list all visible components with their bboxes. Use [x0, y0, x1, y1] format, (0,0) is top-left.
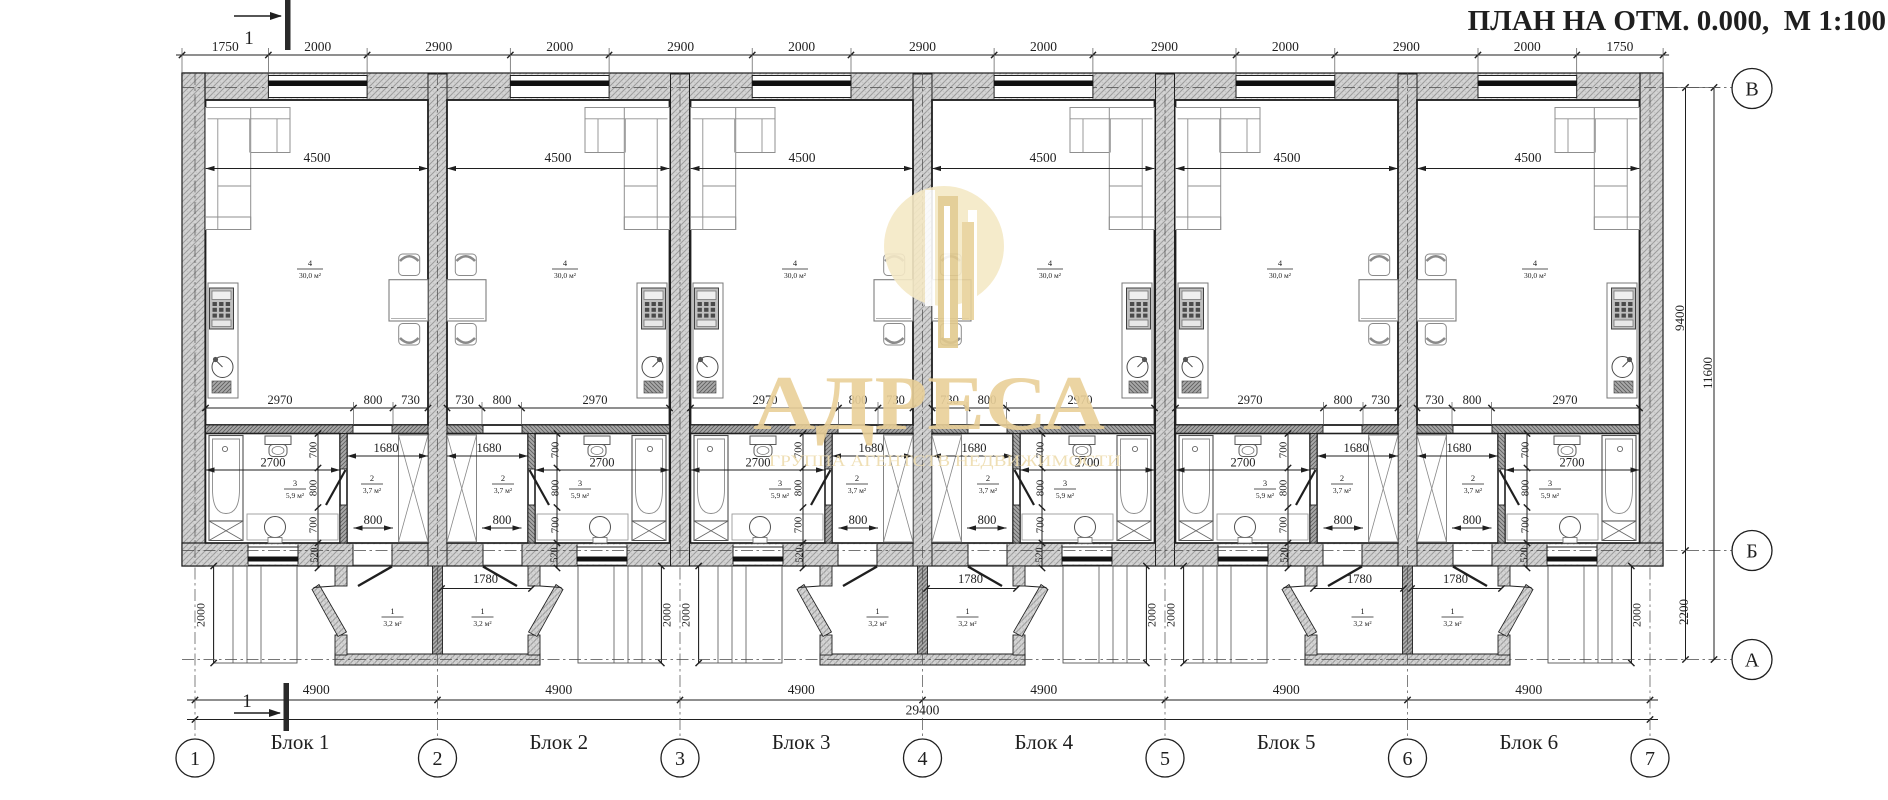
- svg-text:520: 520: [1520, 548, 1531, 563]
- svg-text:11600: 11600: [1700, 357, 1715, 389]
- svg-text:7: 7: [1645, 748, 1655, 770]
- svg-text:2000: 2000: [1145, 603, 1159, 627]
- svg-text:30,0 м²: 30,0 м²: [299, 271, 322, 280]
- svg-text:2: 2: [1471, 473, 1475, 483]
- svg-text:2000: 2000: [1272, 39, 1299, 54]
- svg-text:2900: 2900: [425, 39, 452, 54]
- svg-text:1780: 1780: [1347, 572, 1372, 586]
- svg-text:4900: 4900: [788, 682, 815, 697]
- svg-text:2000: 2000: [788, 39, 815, 54]
- svg-text:Блок 4: Блок 4: [1014, 730, 1073, 754]
- svg-text:4: 4: [918, 748, 928, 770]
- svg-text:3: 3: [1548, 478, 1552, 488]
- svg-text:2000: 2000: [1630, 603, 1644, 627]
- svg-text:800: 800: [550, 479, 562, 496]
- svg-text:700: 700: [550, 516, 562, 533]
- svg-text:3,7 м²: 3,7 м²: [979, 486, 998, 495]
- svg-text:1780: 1780: [958, 572, 983, 586]
- svg-text:2: 2: [1340, 473, 1344, 483]
- svg-text:700: 700: [1278, 441, 1290, 458]
- svg-text:5,9 м²: 5,9 м²: [571, 491, 590, 500]
- svg-text:5,9 м²: 5,9 м²: [1541, 491, 1560, 500]
- svg-text:1780: 1780: [1443, 572, 1468, 586]
- svg-text:1750: 1750: [1606, 39, 1633, 54]
- svg-text:520: 520: [795, 548, 806, 563]
- svg-text:3,7 м²: 3,7 м²: [1333, 486, 1352, 495]
- svg-text:2000: 2000: [304, 39, 331, 54]
- svg-text:2000: 2000: [1164, 603, 1178, 627]
- svg-text:700: 700: [1520, 441, 1532, 458]
- svg-text:4900: 4900: [1030, 682, 1057, 697]
- svg-text:4500: 4500: [304, 150, 331, 165]
- svg-text:4900: 4900: [1515, 682, 1542, 697]
- svg-text:2700: 2700: [261, 456, 286, 470]
- svg-text:Блок 3: Блок 3: [772, 730, 831, 754]
- svg-text:1750: 1750: [212, 39, 239, 54]
- svg-text:Блок 6: Блок 6: [1499, 730, 1558, 754]
- svg-text:800: 800: [308, 479, 320, 496]
- svg-text:ГРУППА АГЕНТСТВ НЕДВИЖИМОСТИ: ГРУППА АГЕНТСТВ НЕДВИЖИМОСТИ: [769, 453, 1121, 470]
- svg-text:520: 520: [550, 548, 561, 563]
- svg-text:2000: 2000: [1514, 39, 1541, 54]
- svg-text:2200: 2200: [1676, 599, 1691, 625]
- svg-text:1: 1: [480, 606, 484, 616]
- svg-text:1680: 1680: [1447, 441, 1472, 455]
- svg-text:2000: 2000: [546, 39, 573, 54]
- svg-text:700: 700: [1520, 516, 1532, 533]
- svg-text:3,2 м²: 3,2 м²: [1353, 619, 1372, 628]
- svg-text:1: 1: [965, 606, 969, 616]
- svg-text:А: А: [1745, 650, 1760, 672]
- svg-text:730: 730: [401, 393, 420, 407]
- svg-text:3,2 м²: 3,2 м²: [958, 619, 977, 628]
- svg-text:4900: 4900: [545, 682, 572, 697]
- svg-text:2700: 2700: [1560, 456, 1585, 470]
- svg-text:3: 3: [578, 478, 582, 488]
- svg-text:700: 700: [550, 441, 562, 458]
- svg-text:3: 3: [1063, 478, 1067, 488]
- svg-text:800: 800: [1035, 479, 1047, 496]
- svg-text:1: 1: [875, 606, 879, 616]
- svg-text:800: 800: [493, 393, 512, 407]
- svg-text:5,9 м²: 5,9 м²: [771, 491, 790, 500]
- svg-text:4500: 4500: [1515, 150, 1542, 165]
- svg-text:4500: 4500: [1030, 150, 1057, 165]
- svg-text:Блок 1: Блок 1: [271, 730, 330, 754]
- svg-text:АДРЕСА: АДРЕСА: [753, 360, 1105, 446]
- svg-text:4900: 4900: [303, 682, 330, 697]
- svg-text:Блок 2: Блок 2: [529, 730, 588, 754]
- svg-text:700: 700: [308, 441, 320, 458]
- svg-text:2700: 2700: [590, 456, 615, 470]
- svg-text:5,9 м²: 5,9 м²: [286, 491, 305, 500]
- svg-text:9400: 9400: [1672, 305, 1687, 331]
- svg-text:2900: 2900: [1393, 39, 1420, 54]
- svg-text:3: 3: [293, 478, 297, 488]
- svg-text:2900: 2900: [909, 39, 936, 54]
- svg-text:3,7 м²: 3,7 м²: [363, 486, 382, 495]
- svg-text:730: 730: [1425, 393, 1444, 407]
- svg-text:800: 800: [1463, 513, 1482, 527]
- svg-text:3,2 м²: 3,2 м²: [473, 619, 492, 628]
- svg-text:2: 2: [501, 473, 505, 483]
- svg-text:30,0 м²: 30,0 м²: [554, 271, 577, 280]
- svg-text:4500: 4500: [789, 150, 816, 165]
- svg-text:800: 800: [1463, 393, 1482, 407]
- svg-text:800: 800: [1278, 479, 1290, 496]
- svg-text:2000: 2000: [194, 603, 208, 627]
- svg-text:1680: 1680: [477, 441, 502, 455]
- svg-text:2970: 2970: [1553, 393, 1578, 407]
- svg-text:3,7 м²: 3,7 м²: [1464, 486, 1483, 495]
- svg-text:2700: 2700: [1231, 456, 1256, 470]
- svg-text:5: 5: [1160, 748, 1170, 770]
- svg-text:3,2 м²: 3,2 м²: [868, 619, 887, 628]
- svg-text:3,2 м²: 3,2 м²: [383, 619, 402, 628]
- svg-text:700: 700: [793, 516, 805, 533]
- svg-text:5,9 м²: 5,9 м²: [1256, 491, 1275, 500]
- svg-text:2900: 2900: [1151, 39, 1178, 54]
- svg-text:1: 1: [190, 748, 200, 770]
- svg-text:1680: 1680: [374, 441, 399, 455]
- svg-text:3: 3: [675, 748, 685, 770]
- svg-text:2000: 2000: [679, 603, 693, 627]
- svg-text:800: 800: [364, 393, 383, 407]
- svg-text:2000: 2000: [660, 603, 674, 627]
- svg-text:2: 2: [986, 473, 990, 483]
- svg-text:2700: 2700: [746, 456, 771, 470]
- svg-text:4900: 4900: [1273, 682, 1300, 697]
- svg-text:1: 1: [1360, 606, 1364, 616]
- svg-text:5,9 м²: 5,9 м²: [1056, 491, 1075, 500]
- svg-text:520: 520: [1035, 548, 1046, 563]
- svg-text:730: 730: [1371, 393, 1390, 407]
- svg-text:800: 800: [493, 513, 512, 527]
- svg-text:730: 730: [455, 393, 474, 407]
- svg-text:700: 700: [1035, 516, 1047, 533]
- svg-text:4500: 4500: [1274, 150, 1301, 165]
- svg-text:1: 1: [390, 606, 394, 616]
- svg-text:30,0 м²: 30,0 м²: [784, 271, 807, 280]
- svg-text:1: 1: [242, 691, 252, 712]
- svg-text:3,7 м²: 3,7 м²: [494, 486, 513, 495]
- svg-text:2: 2: [370, 473, 374, 483]
- svg-text:1780: 1780: [473, 572, 498, 586]
- svg-text:3,2 м²: 3,2 м²: [1443, 619, 1462, 628]
- svg-text:4500: 4500: [545, 150, 572, 165]
- svg-text:1: 1: [1450, 606, 1454, 616]
- svg-text:800: 800: [793, 479, 805, 496]
- svg-text:2000: 2000: [1030, 39, 1057, 54]
- svg-text:800: 800: [1334, 393, 1353, 407]
- svg-text:Блок 5: Блок 5: [1257, 730, 1316, 754]
- svg-text:6: 6: [1403, 748, 1413, 770]
- svg-text:3,7 м²: 3,7 м²: [848, 486, 867, 495]
- svg-text:800: 800: [1334, 513, 1353, 527]
- svg-text:3: 3: [778, 478, 782, 488]
- svg-text:3: 3: [1263, 478, 1267, 488]
- svg-text:30,0 м²: 30,0 м²: [1524, 271, 1547, 280]
- svg-text:2970: 2970: [1238, 393, 1263, 407]
- svg-text:520: 520: [310, 548, 321, 563]
- svg-text:520: 520: [1280, 548, 1291, 563]
- svg-text:1: 1: [244, 28, 254, 49]
- svg-text:ПЛАН НА ОТМ. 0.000, М 1:100: ПЛАН НА ОТМ. 0.000, М 1:100: [1468, 5, 1886, 37]
- svg-text:800: 800: [364, 513, 383, 527]
- svg-text:1680: 1680: [1344, 441, 1369, 455]
- svg-text:30,0 м²: 30,0 м²: [1269, 271, 1292, 280]
- svg-text:В: В: [1745, 79, 1758, 101]
- svg-text:800: 800: [849, 513, 868, 527]
- svg-text:700: 700: [308, 516, 320, 533]
- svg-text:700: 700: [1278, 516, 1290, 533]
- svg-text:2900: 2900: [667, 39, 694, 54]
- svg-text:800: 800: [978, 513, 997, 527]
- svg-text:2: 2: [855, 473, 859, 483]
- svg-text:2: 2: [433, 748, 443, 770]
- svg-text:2970: 2970: [268, 393, 293, 407]
- svg-text:800: 800: [1520, 479, 1532, 496]
- svg-text:2970: 2970: [583, 393, 608, 407]
- svg-text:Б: Б: [1746, 541, 1757, 563]
- svg-text:30,0 м²: 30,0 м²: [1039, 271, 1062, 280]
